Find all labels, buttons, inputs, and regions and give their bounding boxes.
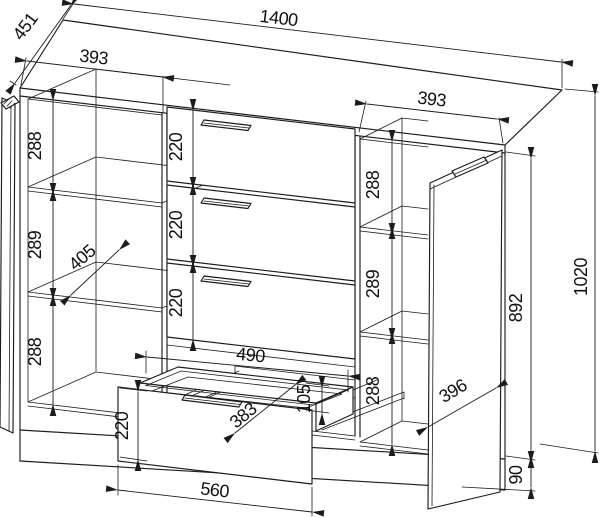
- drawing-canvas: 1400 451 393 393 288 289 288 405 220 220…: [0, 0, 600, 517]
- cabinet-dimension-drawing: 1400 451 393 393 288 289 288 405 220 220…: [0, 0, 600, 517]
- dim-pulled-drawer-height: 220: [112, 411, 132, 440]
- dim-drawer-front-1: 220: [166, 132, 186, 161]
- dim-plinth-height: 90: [506, 465, 526, 485]
- dim-pulled-drawer-width: 560: [199, 478, 230, 501]
- right-door-open: [428, 150, 502, 509]
- divider-right: [355, 135, 360, 437]
- dim-left-compartment-bottom: 288: [25, 337, 45, 366]
- dim-right-compartment-top: 288: [363, 170, 383, 199]
- dim-overall-height: 1020: [571, 257, 591, 296]
- dim-drawer-inner-width: 490: [235, 344, 266, 367]
- dim-right-compartment-bottom: 288: [363, 376, 383, 405]
- dim-right-section-width: 393: [416, 87, 447, 110]
- dim-left-compartment-top: 288: [25, 131, 45, 160]
- dim-shelf-depth: 405: [65, 240, 100, 274]
- dim-drawer-front-2: 220: [166, 210, 186, 239]
- dim-right-compartment-middle: 289: [363, 269, 383, 298]
- dim-left-section-width: 393: [78, 45, 109, 68]
- dim-overall-depth: 451: [9, 9, 42, 44]
- dim-left-compartment-middle: 289: [25, 230, 45, 259]
- dim-drawer-front-3: 220: [166, 288, 186, 317]
- left-door-open: [0, 98, 15, 433]
- dim-carcass-height: 892: [506, 293, 526, 322]
- dim-drawer-side-height: 105: [294, 384, 314, 413]
